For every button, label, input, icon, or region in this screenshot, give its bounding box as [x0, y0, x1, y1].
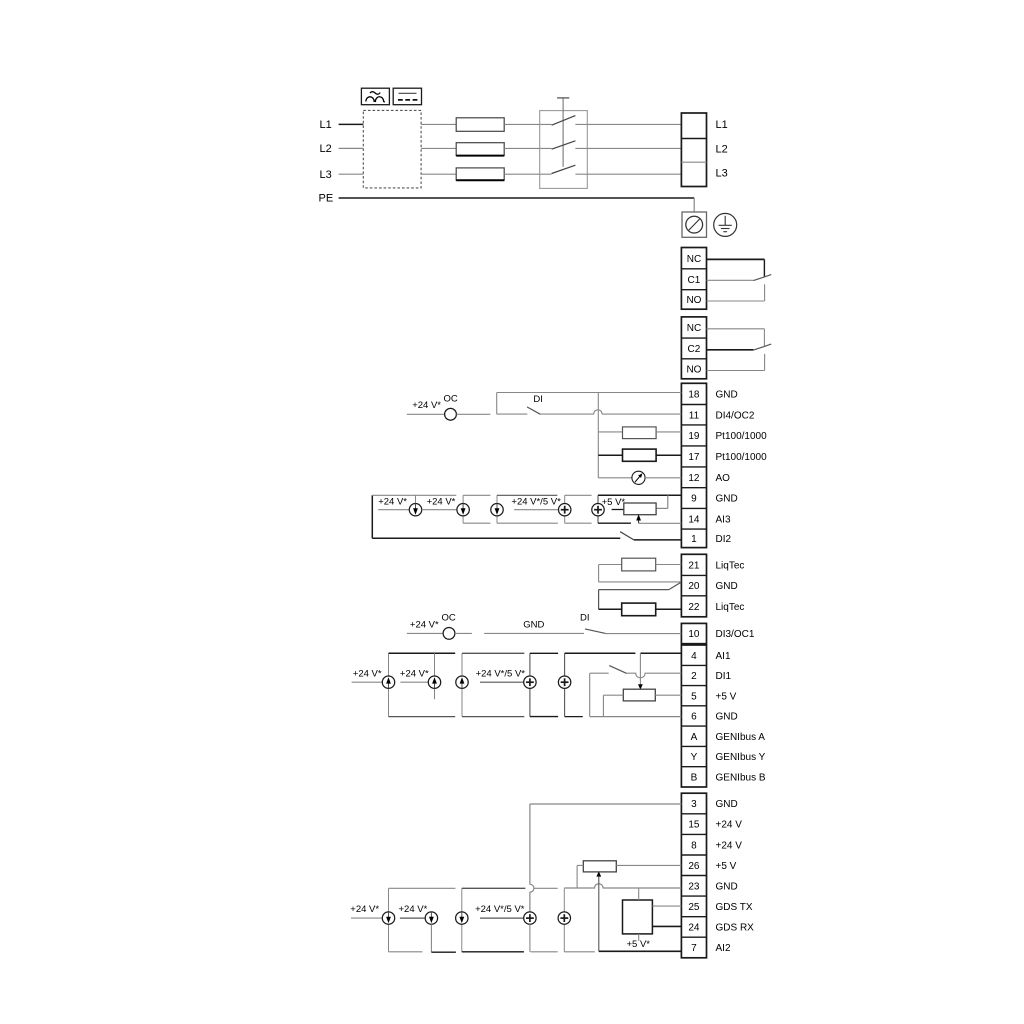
svg-text:2: 2: [691, 671, 697, 682]
svg-text:+24 V: +24 V: [716, 840, 743, 851]
svg-text:17: 17: [688, 452, 700, 463]
svg-text:GND: GND: [716, 494, 738, 505]
svg-text:L2: L2: [320, 143, 332, 155]
svg-text:+5 V*: +5 V*: [602, 497, 626, 508]
svg-text:+24 V*/5 V*: +24 V*/5 V*: [475, 904, 525, 915]
svg-text:C2: C2: [688, 344, 701, 355]
svg-text:AI3: AI3: [716, 514, 731, 525]
svg-text:AI2: AI2: [716, 943, 731, 954]
svg-text:GND: GND: [716, 581, 738, 592]
svg-text:+5 V*: +5 V*: [627, 939, 651, 950]
svg-text:Pt100/1000: Pt100/1000: [716, 431, 768, 442]
svg-text:DI: DI: [580, 612, 590, 623]
svg-text:8: 8: [691, 840, 697, 851]
svg-text:Y: Y: [691, 752, 698, 763]
svg-text:DI4/OC2: DI4/OC2: [716, 410, 755, 421]
svg-text:GDS RX: GDS RX: [716, 923, 755, 934]
svg-text:L3: L3: [320, 169, 332, 181]
svg-text:19: 19: [688, 431, 700, 442]
svg-text:26: 26: [688, 861, 700, 872]
svg-text:22: 22: [688, 602, 700, 613]
svg-text:L3: L3: [716, 168, 728, 180]
svg-text:DI3/OC1: DI3/OC1: [716, 629, 755, 640]
svg-text:B: B: [691, 772, 698, 783]
svg-text:GDS TX: GDS TX: [716, 902, 753, 913]
svg-text:3: 3: [691, 799, 697, 810]
svg-text:+24 V*: +24 V*: [410, 620, 439, 631]
svg-text:L2: L2: [716, 144, 728, 156]
svg-text:+5 V: +5 V: [716, 691, 737, 702]
svg-text:NC: NC: [687, 323, 701, 334]
svg-text:Pt100/1000: Pt100/1000: [716, 452, 768, 463]
svg-text:15: 15: [688, 820, 700, 831]
svg-text:GENIbus A: GENIbus A: [716, 732, 766, 743]
svg-text:+24 V*: +24 V*: [412, 400, 441, 411]
svg-text:24: 24: [688, 923, 700, 934]
svg-text:23: 23: [688, 881, 700, 892]
svg-text:OC: OC: [444, 394, 458, 405]
svg-text:GND: GND: [716, 881, 738, 892]
svg-text:14: 14: [688, 514, 700, 525]
svg-text:+24 V*: +24 V*: [350, 904, 379, 915]
svg-text:+24 V*: +24 V*: [399, 904, 428, 915]
svg-text:4: 4: [691, 651, 697, 662]
svg-text:GENIbus B: GENIbus B: [716, 772, 766, 783]
svg-text:GND: GND: [716, 799, 738, 810]
svg-text:AI1: AI1: [716, 651, 731, 662]
svg-text:DI1: DI1: [716, 671, 732, 682]
svg-text:+24 V*: +24 V*: [378, 497, 407, 508]
svg-text:GENIbus Y: GENIbus Y: [716, 752, 766, 763]
svg-text:20: 20: [688, 581, 700, 592]
svg-text:25: 25: [688, 902, 700, 913]
svg-text:+24 V*/5 V*: +24 V*/5 V*: [476, 669, 526, 680]
svg-text:GND: GND: [523, 620, 544, 631]
svg-text:LiqTec: LiqTec: [716, 602, 745, 613]
svg-text:DI: DI: [533, 394, 543, 405]
svg-text:+24 V*: +24 V*: [353, 669, 382, 680]
svg-text:DI2: DI2: [716, 534, 732, 545]
svg-text:+24 V*: +24 V*: [427, 497, 456, 508]
svg-text:+24 V: +24 V: [716, 820, 743, 831]
svg-text:6: 6: [691, 712, 697, 723]
svg-text:PE: PE: [319, 193, 334, 205]
svg-text:GND: GND: [716, 390, 738, 401]
svg-text:10: 10: [688, 629, 700, 640]
svg-text:11: 11: [689, 410, 700, 421]
svg-text:7: 7: [691, 943, 697, 954]
svg-text:+24 V*: +24 V*: [400, 669, 429, 680]
svg-text:5: 5: [691, 691, 697, 702]
svg-text:LiqTec: LiqTec: [716, 560, 745, 571]
svg-text:A: A: [691, 732, 698, 743]
svg-text:1: 1: [691, 534, 697, 545]
svg-text:OC: OC: [442, 612, 456, 623]
svg-text:L1: L1: [320, 119, 332, 131]
svg-text:L1: L1: [716, 119, 728, 131]
svg-text:GND: GND: [716, 712, 738, 723]
svg-text:AO: AO: [716, 473, 731, 484]
svg-text:18: 18: [688, 390, 700, 401]
svg-text:12: 12: [688, 473, 700, 484]
svg-text:9: 9: [691, 494, 697, 505]
svg-text:NO: NO: [686, 364, 701, 375]
svg-text:21: 21: [688, 560, 700, 571]
svg-text:+24 V*/5 V*: +24 V*/5 V*: [511, 497, 561, 508]
svg-text:+5 V: +5 V: [716, 861, 737, 872]
svg-text:NC: NC: [687, 254, 701, 265]
svg-text:C1: C1: [688, 275, 701, 286]
svg-text:NO: NO: [686, 295, 701, 306]
